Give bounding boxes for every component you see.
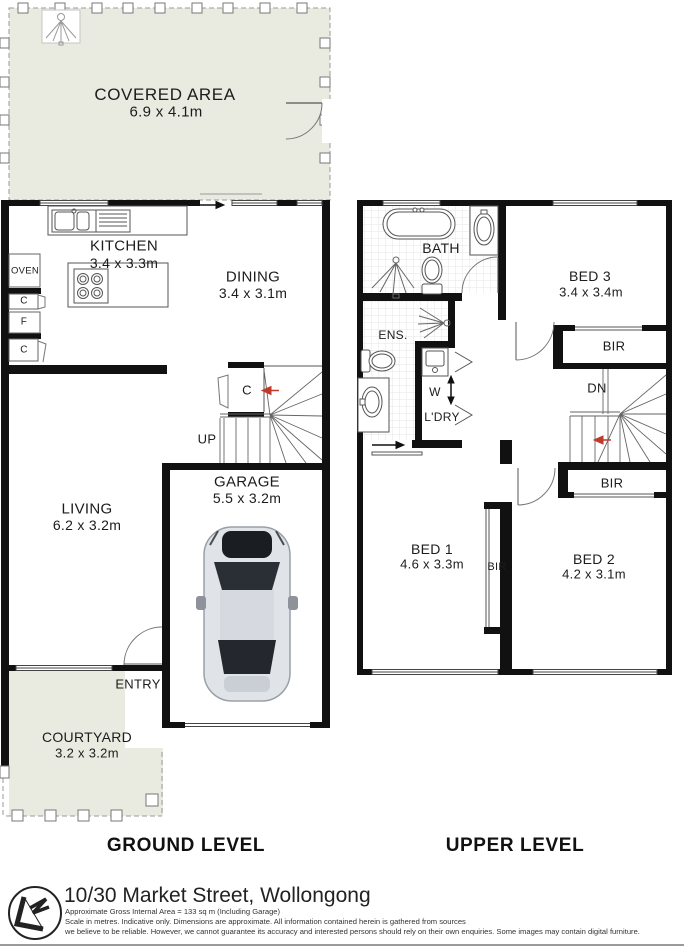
cupboard-label: C bbox=[20, 296, 28, 307]
disclaimer-line-1: Scale in metres. Indicative only. Dimens… bbox=[65, 917, 466, 927]
upper-level-title: UPPER LEVEL bbox=[446, 835, 585, 857]
stair-direction-arrow-icon bbox=[262, 387, 279, 395]
sliding-door-arrow-icon bbox=[199, 202, 224, 209]
upper-door-arcs bbox=[462, 257, 555, 505]
covered-area-dims: 6.9 x 4.1m bbox=[129, 104, 202, 121]
living-dims: 6.2 x 3.2m bbox=[53, 517, 121, 533]
floor-plan-drawing bbox=[0, 0, 684, 948]
garage-dims: 5.5 x 3.2m bbox=[213, 490, 281, 506]
bir-label: BIR bbox=[487, 561, 506, 573]
washing-machine-icon bbox=[422, 348, 448, 376]
courtyard-dims: 3.2 x 3.2m bbox=[55, 746, 119, 761]
cupboard-label: C bbox=[20, 345, 28, 356]
dining-dims: 3.4 x 3.1m bbox=[219, 285, 287, 301]
garage-door bbox=[185, 724, 310, 727]
bed1-label: BED 1 bbox=[411, 541, 453, 557]
bed3-label: BED 3 bbox=[569, 268, 611, 284]
bathtub-icon bbox=[383, 208, 455, 239]
bed3-dims: 3.4 x 3.4m bbox=[559, 285, 623, 300]
stair-cupboard-label: C bbox=[242, 383, 252, 398]
bed2-dims: 4.2 x 3.1m bbox=[562, 567, 626, 582]
bir-label: BIR bbox=[603, 339, 626, 354]
dn-label: DN bbox=[587, 381, 606, 396]
bottom-divider bbox=[0, 944, 684, 946]
disclaimer-line-2: we believe to be reliable. However, we c… bbox=[65, 927, 640, 937]
bath-label: BATH bbox=[422, 240, 460, 256]
ens-toilet-icon bbox=[361, 350, 395, 372]
bed1-dims: 4.6 x 3.3m bbox=[400, 557, 464, 572]
dining-label: DINING bbox=[226, 269, 280, 286]
oven-label: OVEN bbox=[11, 266, 39, 277]
bath-basin-icon bbox=[470, 206, 498, 255]
property-address: 10/30 Market Street, Wollongong bbox=[64, 884, 371, 908]
area-note: Approximate Gross Internal Area = 133 sq… bbox=[65, 907, 280, 917]
laundry-double-arrow-icon bbox=[448, 376, 454, 404]
car-top-view bbox=[196, 527, 298, 701]
laundry-label: L'DRY bbox=[424, 410, 460, 424]
bath-toilet-icon bbox=[422, 257, 442, 294]
entry-label: ENTRY bbox=[115, 677, 160, 692]
entry-door-arc bbox=[124, 627, 162, 665]
floor-plan-page: COVERED AREA 6.9 x 4.1m KITCHEN 3.4 x 3.… bbox=[0, 0, 684, 948]
fridge-label: F bbox=[21, 317, 27, 328]
ens-label: ENS. bbox=[378, 328, 407, 342]
courtyard-label: COURTYARD bbox=[42, 729, 132, 745]
covered-area-label: COVERED AREA bbox=[94, 85, 235, 105]
bed2-label: BED 2 bbox=[573, 551, 615, 567]
ens-basin-icon bbox=[358, 378, 389, 432]
ground-level-title: GROUND LEVEL bbox=[107, 835, 265, 857]
bir-label: BIR bbox=[601, 476, 624, 491]
kitchen-label: KITCHEN bbox=[90, 238, 158, 255]
garage-label: GARAGE bbox=[214, 474, 280, 491]
kitchen-dims: 3.4 x 3.3m bbox=[90, 255, 158, 271]
washer-label: W bbox=[429, 385, 441, 399]
stairs-up bbox=[218, 362, 322, 463]
ceiling-fan-icon bbox=[42, 10, 80, 45]
up-label: UP bbox=[198, 432, 217, 447]
stairs-down bbox=[570, 369, 666, 462]
agency-logo bbox=[9, 887, 61, 939]
living-label: LIVING bbox=[62, 501, 113, 518]
